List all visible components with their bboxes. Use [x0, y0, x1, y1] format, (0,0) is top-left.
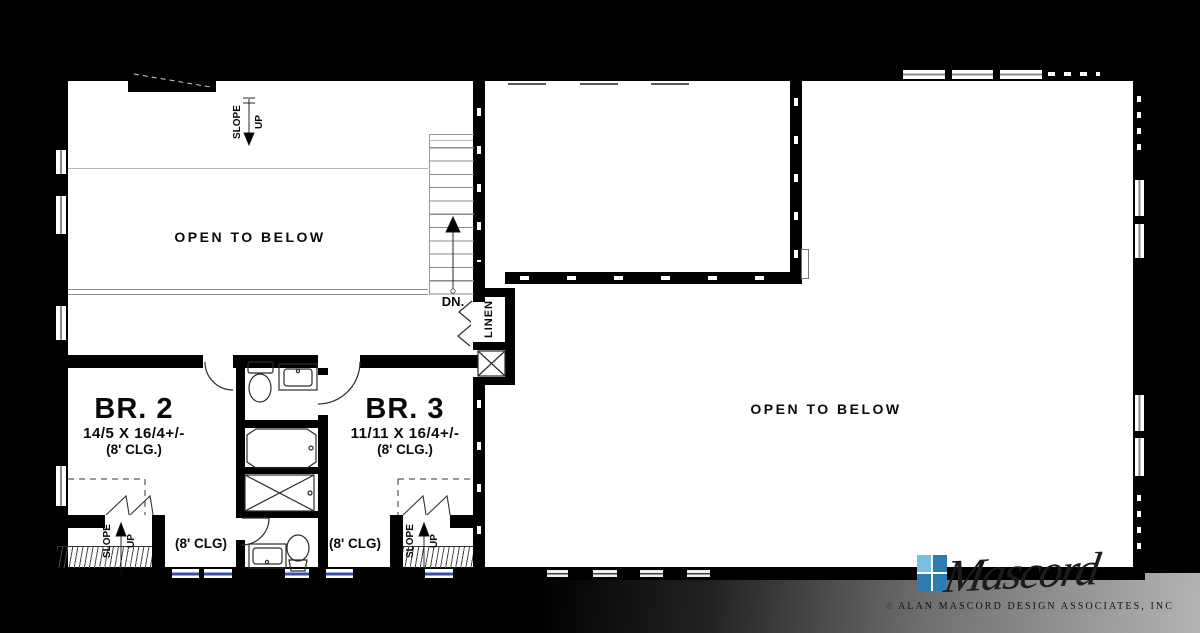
window-bottom-3 [285, 569, 309, 578]
icon-pane-light [917, 555, 931, 572]
wall-bath-div1 [236, 420, 328, 428]
slope-up-top-up: UP [254, 108, 267, 136]
window-right-2 [1135, 224, 1144, 258]
ceiling-break-line [68, 168, 428, 169]
window-bottom-right-1 [547, 570, 568, 577]
br2-ceiling: (8' CLG.) [68, 442, 200, 457]
wall-closet3-top [450, 515, 473, 528]
wall-bath-right-jamb [318, 368, 328, 375]
window-right-3 [1135, 395, 1144, 431]
stair-nosing-line [429, 140, 473, 141]
window-top-2 [952, 70, 993, 79]
window-top-1 [903, 70, 945, 79]
slope-up-closet2-slope: SLOPE [102, 506, 118, 576]
hall-ceiling-right: (8' CLG) [322, 536, 388, 551]
wall-midroom-bottom [505, 272, 802, 284]
chimney [128, 81, 216, 92]
window-right-4 [1135, 438, 1144, 476]
wall-bedrooms-right [473, 385, 485, 580]
open-below-railing [68, 289, 428, 295]
wall-bath-left [236, 368, 245, 517]
wall-closet3-left [390, 515, 403, 580]
icon-pane [917, 574, 931, 591]
wall-linen-bottom [473, 342, 515, 350]
hall-ceiling-left: (8' CLG) [166, 536, 236, 551]
open-to-below-right-label: OPEN TO BELOW [726, 401, 926, 417]
br2-dimensions: 14/5 X 16/4+/- [68, 425, 200, 442]
wall-bath-left-low [236, 540, 245, 568]
wall-bath-div2 [236, 467, 328, 474]
window-bottom-right-3 [640, 570, 663, 577]
icon-pane [933, 555, 947, 572]
window-right-1 [1135, 180, 1144, 216]
wall-bath-right [318, 415, 328, 580]
wall-closet2-right [152, 515, 165, 580]
window-bottom-right-4 [687, 570, 710, 577]
br2-room-name: BR. 2 [84, 393, 184, 426]
wall-bedroom-top-c [360, 355, 485, 368]
window-left-4 [56, 466, 66, 506]
wall-closet2-top [55, 515, 105, 528]
window-bottom-right-2 [593, 570, 617, 577]
br3-ceiling: (8' CLG.) [339, 442, 471, 457]
slope-up-closet3-slope: SLOPE [405, 506, 421, 576]
wall-chase-bottom [473, 377, 515, 385]
door-notch-midroom [801, 249, 809, 279]
slope-up-top-slope: SLOPE [232, 98, 247, 146]
br3-dimensions: 11/11 X 16/4+/- [339, 425, 471, 442]
slope-up-closet2-up: UP [126, 524, 140, 558]
window-bottom-2 [204, 569, 232, 578]
window-top-3 [1000, 70, 1042, 79]
stairs-down-label: DN. [436, 294, 470, 309]
window-bottom-1 [172, 569, 199, 578]
br3-room-name: BR. 3 [355, 393, 455, 426]
staircase [429, 134, 474, 295]
firm-name-line: ©ALAN MASCORD DESIGN ASSOCIATES, INC [886, 601, 1186, 612]
window-left-3 [56, 306, 66, 340]
wall-left-thick [47, 232, 68, 308]
wall-right [1133, 68, 1145, 580]
wall-bedroom-top-b [233, 355, 318, 368]
slope-up-closet3-up: UP [429, 524, 443, 558]
window-left-2 [56, 196, 66, 234]
wall-linen-right [505, 288, 515, 385]
open-to-below-left-label: OPEN TO BELOW [160, 229, 340, 245]
wall-bath-div3 [236, 511, 328, 518]
window-bottom-5 [425, 569, 453, 578]
window-bottom-4 [326, 569, 353, 578]
window-left-1 [56, 150, 66, 174]
firm-name-text: ALAN MASCORD DESIGN ASSOCIATES, INC [898, 601, 1174, 612]
wall-stair-right [473, 81, 485, 302]
floor-plan-canvas: OPEN TO BELOW OPEN TO BELOW BR. 2 14/5 X… [0, 0, 1200, 633]
wall-bedroom-top-a [55, 355, 203, 368]
copyright-icon: © [886, 601, 895, 611]
linen-closet-label: LINEN [483, 297, 501, 341]
plan-background [55, 68, 1145, 580]
